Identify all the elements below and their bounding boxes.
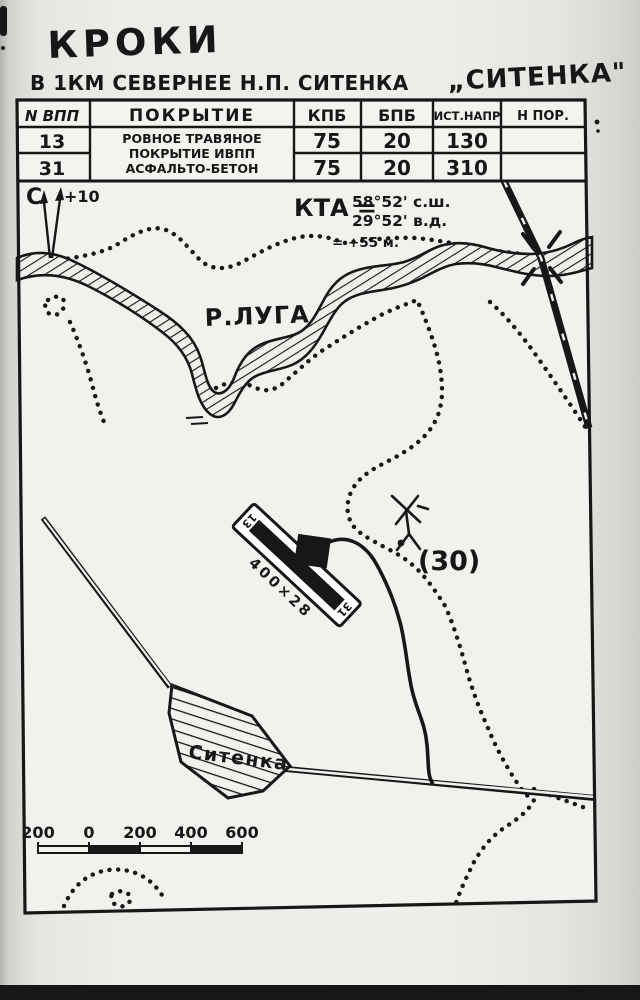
scale-tick-label: 0 — [83, 823, 94, 842]
surface-line: РОВНОЕ ТРАВЯНОЕ — [122, 131, 261, 146]
page-subtitle: В 1КМ СЕВЕРНЕЕ Н.П. СИТЕНКА — [30, 71, 409, 95]
table-cell: 130 — [446, 129, 488, 153]
table-cell: 310 — [446, 156, 488, 180]
kta-latitude: 58°52' с.ш. — [352, 193, 450, 211]
table-header: КПБ — [308, 106, 347, 125]
table-cell: 75 — [313, 129, 341, 153]
kta-elevation: = +55 м. — [332, 235, 399, 251]
airfield-name: „СИТЕНКА" — [447, 58, 627, 97]
table-cell: 20 — [383, 129, 411, 153]
kroki-map: Ситенка 13 31 400×28 (30) Р.ЛУГА С +10 К… — [0, 0, 640, 1000]
table-header: N ВПП — [25, 107, 80, 125]
north-label: С — [26, 185, 42, 210]
scanned-map-page: Ситенка 13 31 400×28 (30) Р.ЛУГА С +10 К… — [0, 0, 640, 1000]
runway-table: N ВПП ПОКРЫТИЕ КПБ БПБ ИСТ.НАПР Н ПОР. 1… — [17, 100, 587, 181]
scale-tick-label: 200 — [123, 823, 156, 842]
surface-line: ПОКРЫТИЕ ИВПП — [129, 146, 255, 161]
table-header: Н ПОР. — [517, 109, 569, 124]
table-header: ИСТ.НАПР — [434, 109, 501, 123]
apron — [294, 534, 331, 568]
kta-longitude: 29°52' в.д. — [352, 212, 447, 230]
page-title: КРОКИ — [47, 18, 223, 67]
table-cell-runway: 31 — [39, 158, 65, 180]
table-header: ПОКРЫТИЕ — [129, 106, 255, 126]
surface-line: АСФАЛЬТО-БЕТОН — [126, 161, 259, 176]
scale-tick-label: 200 — [21, 823, 54, 842]
table-cell: 75 — [313, 156, 341, 180]
scale-tick-label: 400 — [174, 823, 207, 842]
scale-tick-label: 600 — [225, 823, 258, 842]
table-cell-runway: 13 — [39, 131, 65, 153]
spot-elevation-label: (30) — [418, 546, 480, 577]
declination-label: +10 — [64, 187, 100, 206]
table-cell: 20 — [383, 156, 411, 180]
river-label: Р.ЛУГА — [204, 300, 310, 332]
table-header: БПБ — [378, 106, 416, 125]
